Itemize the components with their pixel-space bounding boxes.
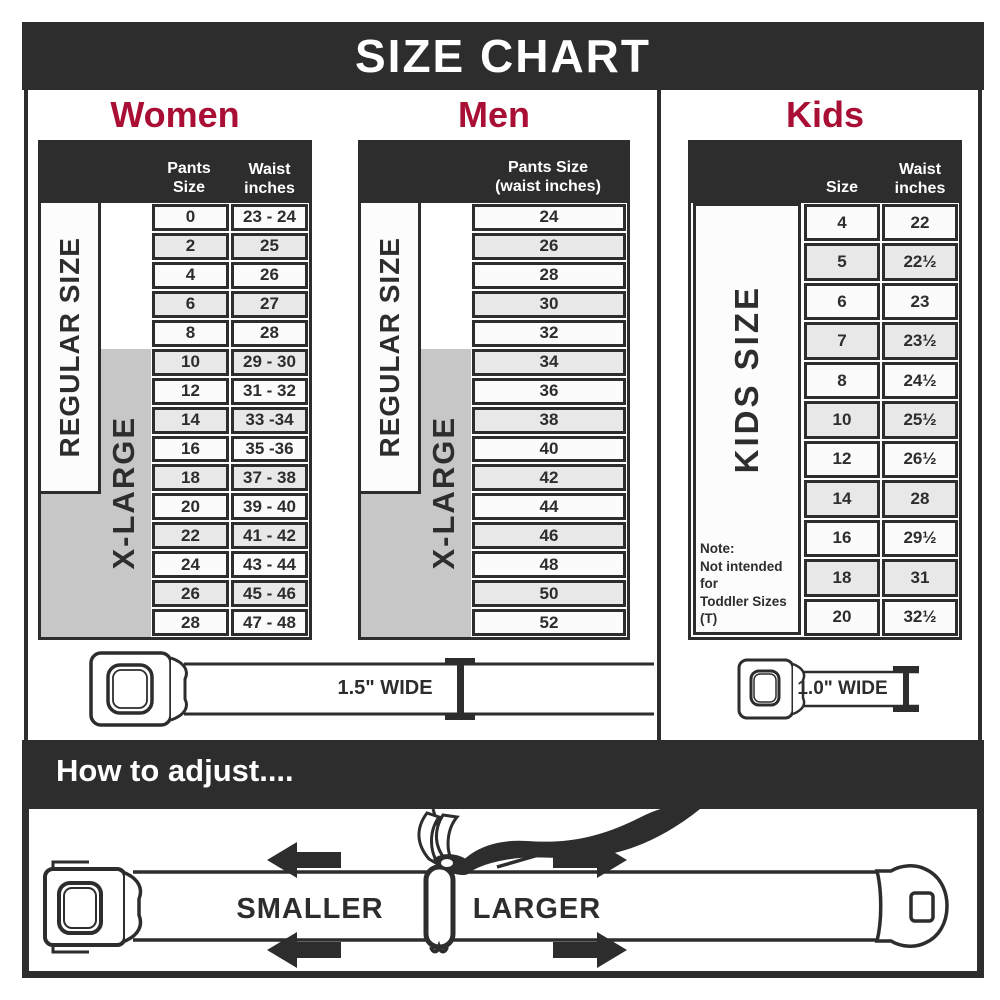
men-table-header: Pants Size (waist inches) bbox=[361, 143, 627, 203]
men-table-body: REGULAR SIZE X-LARGE 2426283032343638404… bbox=[361, 203, 627, 637]
table-cell: 22 bbox=[882, 204, 958, 241]
table-row: 723½ bbox=[803, 321, 959, 360]
table-cell: 42 bbox=[472, 464, 626, 491]
table-cell: 25½ bbox=[882, 401, 958, 438]
waist-header-line2: inches bbox=[881, 179, 959, 198]
table-cell: 23 - 24 bbox=[231, 204, 308, 231]
kids-table-body: KIDS SIZE Note: Not intended for Toddler… bbox=[691, 203, 959, 637]
women-title: Women bbox=[38, 94, 312, 136]
table-cell: 8 bbox=[804, 362, 880, 399]
belt-latch-icon bbox=[877, 866, 947, 946]
table-cell: 34 bbox=[472, 349, 626, 376]
table-cell: 4 bbox=[152, 262, 229, 289]
women-size-gutter: REGULAR SIZE X-LARGE bbox=[41, 203, 151, 637]
table-cell: 40 bbox=[472, 436, 626, 463]
table-cell: 26 bbox=[152, 580, 229, 607]
table-row: 46 bbox=[471, 521, 627, 550]
table-cell: 31 - 32 bbox=[231, 378, 308, 405]
table-cell: 22½ bbox=[882, 243, 958, 280]
table-row: 1231 - 32 bbox=[151, 377, 309, 406]
table-cell: 32 bbox=[472, 320, 626, 347]
smaller-label: SMALLER bbox=[235, 893, 385, 926]
kids-size-label: KIDS SIZE bbox=[728, 285, 766, 473]
table-cell: 27 bbox=[231, 291, 308, 318]
table-cell: 2 bbox=[152, 233, 229, 260]
table-cell: 36 bbox=[472, 378, 626, 405]
note-line1: Note: bbox=[700, 540, 798, 558]
how-to-adjust-bar: How to adjust.... bbox=[22, 740, 984, 802]
waist-header-line2: inches bbox=[230, 179, 309, 198]
adult-belt-width-label: 1.5" WIDE bbox=[320, 677, 450, 700]
left-border-line bbox=[24, 90, 28, 740]
table-cell: 48 bbox=[472, 551, 626, 578]
table-row: 1837 - 38 bbox=[151, 463, 309, 492]
table-cell: 45 - 46 bbox=[231, 580, 308, 607]
table-cell: 25 bbox=[231, 233, 308, 260]
table-row: 824½ bbox=[803, 361, 959, 400]
kids-rows: 422522½623723½824½1025½1226½14281629½183… bbox=[803, 203, 959, 637]
table-row: 2241 - 42 bbox=[151, 521, 309, 550]
xlarge-label: X-LARGE bbox=[426, 416, 462, 570]
xlarge-label: X-LARGE bbox=[106, 416, 142, 570]
table-cell: 26 bbox=[231, 262, 308, 289]
size-chart-page: SIZE CHART Women Pants Size Waist inches… bbox=[0, 0, 1000, 1000]
belt-slider-icon bbox=[426, 867, 453, 952]
seatbelt-buckle-icon bbox=[45, 862, 140, 952]
women-table: Pants Size Waist inches REGULAR SIZE X-L… bbox=[38, 140, 312, 640]
kids-belt-width-label: 1.0" WIDE bbox=[795, 678, 890, 700]
table-row: 1433 -34 bbox=[151, 406, 309, 435]
xlarge-label-box: X-LARGE bbox=[97, 349, 151, 637]
table-row: 26 bbox=[471, 232, 627, 261]
table-row: 1025½ bbox=[803, 400, 959, 439]
table-cell: 24 bbox=[152, 551, 229, 578]
table-row: 522½ bbox=[803, 242, 959, 281]
table-cell: 0 bbox=[152, 204, 229, 231]
men-title: Men bbox=[358, 94, 630, 136]
women-table-body: REGULAR SIZE X-LARGE 023 - 2422542662782… bbox=[41, 203, 309, 637]
women-rows: 023 - 242254266278281029 - 301231 - 3214… bbox=[151, 203, 309, 637]
table-cell: 22 bbox=[152, 522, 229, 549]
table-row: 36 bbox=[471, 377, 627, 406]
table-cell: 26 bbox=[472, 233, 626, 260]
arrow-right-icon bbox=[553, 932, 627, 968]
table-cell: 20 bbox=[152, 493, 229, 520]
kids-note: Note: Not intended for Toddler Sizes (T) bbox=[700, 540, 798, 628]
table-row: 32 bbox=[471, 319, 627, 348]
table-cell: 50 bbox=[472, 580, 626, 607]
men-header-line1: Pants Size bbox=[469, 158, 627, 177]
table-row: 1629½ bbox=[803, 519, 959, 558]
women-table-header: Pants Size Waist inches bbox=[41, 143, 309, 203]
table-cell: 28 bbox=[231, 320, 308, 347]
table-row: 623 bbox=[803, 282, 959, 321]
table-cell: 14 bbox=[152, 407, 229, 434]
table-cell: 4 bbox=[804, 204, 880, 241]
table-cell: 16 bbox=[804, 520, 880, 557]
how-to-adjust-title: How to adjust.... bbox=[56, 753, 294, 789]
table-cell: 29½ bbox=[882, 520, 958, 557]
table-cell: 38 bbox=[472, 407, 626, 434]
table-row: 24 bbox=[471, 203, 627, 232]
men-rows: 242628303234363840424446485052 bbox=[471, 203, 627, 637]
table-cell: 18 bbox=[152, 464, 229, 491]
table-cell: 31 bbox=[882, 559, 958, 596]
table-row: 426 bbox=[151, 261, 309, 290]
men-col-header: Pants Size (waist inches) bbox=[469, 158, 627, 196]
banner: SIZE CHART bbox=[22, 22, 984, 90]
table-cell: 12 bbox=[804, 441, 880, 478]
table-cell: 23 bbox=[882, 283, 958, 320]
waist-header-line1: Waist bbox=[230, 160, 309, 179]
table-cell: 23½ bbox=[882, 322, 958, 359]
table-cell: 20 bbox=[804, 599, 880, 636]
table-cell: 30 bbox=[472, 291, 626, 318]
table-cell: 28 bbox=[882, 480, 958, 517]
table-row: 34 bbox=[471, 348, 627, 377]
table-cell: 52 bbox=[472, 609, 626, 636]
regular-size-label-box: REGULAR SIZE bbox=[41, 203, 101, 494]
waist-header-line1: Waist bbox=[881, 160, 959, 179]
table-cell: 28 bbox=[152, 609, 229, 636]
table-cell: 41 - 42 bbox=[231, 522, 308, 549]
men-header-line2: (waist inches) bbox=[469, 177, 627, 196]
table-cell: 35 -36 bbox=[231, 436, 308, 463]
table-row: 1029 - 30 bbox=[151, 348, 309, 377]
table-row: 30 bbox=[471, 290, 627, 319]
adjust-belt-illustration bbox=[29, 809, 977, 971]
table-cell: 8 bbox=[152, 320, 229, 347]
kids-table: Size Waist inches KIDS SIZE Note: Not in… bbox=[688, 140, 962, 640]
page-title: SIZE CHART bbox=[355, 29, 651, 83]
table-cell: 39 - 40 bbox=[231, 493, 308, 520]
kids-col-waist-header: Waist inches bbox=[881, 160, 959, 198]
table-row: 52 bbox=[471, 608, 627, 637]
table-row: 50 bbox=[471, 579, 627, 608]
kids-size-gutter: KIDS SIZE Note: Not intended for Toddler… bbox=[691, 203, 803, 637]
table-cell: 12 bbox=[152, 378, 229, 405]
table-row: 1635 -36 bbox=[151, 435, 309, 464]
table-cell: 46 bbox=[472, 522, 626, 549]
regular-size-label-box: REGULAR SIZE bbox=[361, 203, 421, 494]
table-cell: 10 bbox=[804, 401, 880, 438]
table-cell: 16 bbox=[152, 436, 229, 463]
table-row: 2032½ bbox=[803, 598, 959, 637]
table-row: 2847 - 48 bbox=[151, 608, 309, 637]
table-cell: 28 bbox=[472, 262, 626, 289]
table-row: 40 bbox=[471, 435, 627, 464]
table-cell: 43 - 44 bbox=[231, 551, 308, 578]
table-row: 023 - 24 bbox=[151, 203, 309, 232]
kids-table-header: Size Waist inches bbox=[691, 143, 959, 203]
right-border-line bbox=[978, 90, 982, 740]
table-cell: 33 -34 bbox=[231, 407, 308, 434]
table-row: 828 bbox=[151, 319, 309, 348]
xlarge-label-box: X-LARGE bbox=[417, 349, 471, 637]
table-row: 1428 bbox=[803, 479, 959, 518]
regular-size-label: REGULAR SIZE bbox=[54, 237, 86, 457]
table-cell: 5 bbox=[804, 243, 880, 280]
table-cell: 6 bbox=[804, 283, 880, 320]
table-cell: 24 bbox=[472, 204, 626, 231]
table-row: 422 bbox=[803, 203, 959, 242]
table-row: 2039 - 40 bbox=[151, 492, 309, 521]
note-line3: Toddler Sizes (T) bbox=[700, 593, 798, 628]
table-row: 225 bbox=[151, 232, 309, 261]
table-row: 44 bbox=[471, 492, 627, 521]
women-col-pants-header: Pants Size bbox=[149, 159, 229, 197]
men-table: Pants Size (waist inches) REGULAR SIZE X… bbox=[358, 140, 630, 640]
table-cell: 6 bbox=[152, 291, 229, 318]
table-cell: 10 bbox=[152, 349, 229, 376]
table-cell: 32½ bbox=[882, 599, 958, 636]
table-cell: 44 bbox=[472, 493, 626, 520]
table-row: 42 bbox=[471, 463, 627, 492]
kids-title: Kids bbox=[688, 94, 962, 136]
table-row: 28 bbox=[471, 261, 627, 290]
men-size-gutter: REGULAR SIZE X-LARGE bbox=[361, 203, 471, 637]
table-cell: 26½ bbox=[882, 441, 958, 478]
table-cell: 7 bbox=[804, 322, 880, 359]
table-row: 38 bbox=[471, 406, 627, 435]
table-row: 48 bbox=[471, 550, 627, 579]
kids-divider-line bbox=[657, 90, 661, 740]
table-row: 1226½ bbox=[803, 440, 959, 479]
arrow-left-icon bbox=[267, 932, 341, 968]
table-cell: 24½ bbox=[882, 362, 958, 399]
table-cell: 18 bbox=[804, 559, 880, 596]
table-row: 1831 bbox=[803, 558, 959, 597]
larger-label: LARGER bbox=[462, 893, 612, 926]
note-line2: Not intended for bbox=[700, 558, 798, 593]
table-cell: 29 - 30 bbox=[231, 349, 308, 376]
table-cell: 37 - 38 bbox=[231, 464, 308, 491]
table-row: 627 bbox=[151, 290, 309, 319]
table-cell: 47 - 48 bbox=[231, 609, 308, 636]
kids-col-size-header: Size bbox=[803, 178, 881, 197]
kids-size-label-box: KIDS SIZE Note: Not intended for Toddler… bbox=[693, 203, 801, 635]
table-row: 2645 - 46 bbox=[151, 579, 309, 608]
regular-size-label: REGULAR SIZE bbox=[374, 237, 406, 457]
table-cell: 14 bbox=[804, 480, 880, 517]
table-row: 2443 - 44 bbox=[151, 550, 309, 579]
women-col-waist-header: Waist inches bbox=[230, 160, 309, 198]
